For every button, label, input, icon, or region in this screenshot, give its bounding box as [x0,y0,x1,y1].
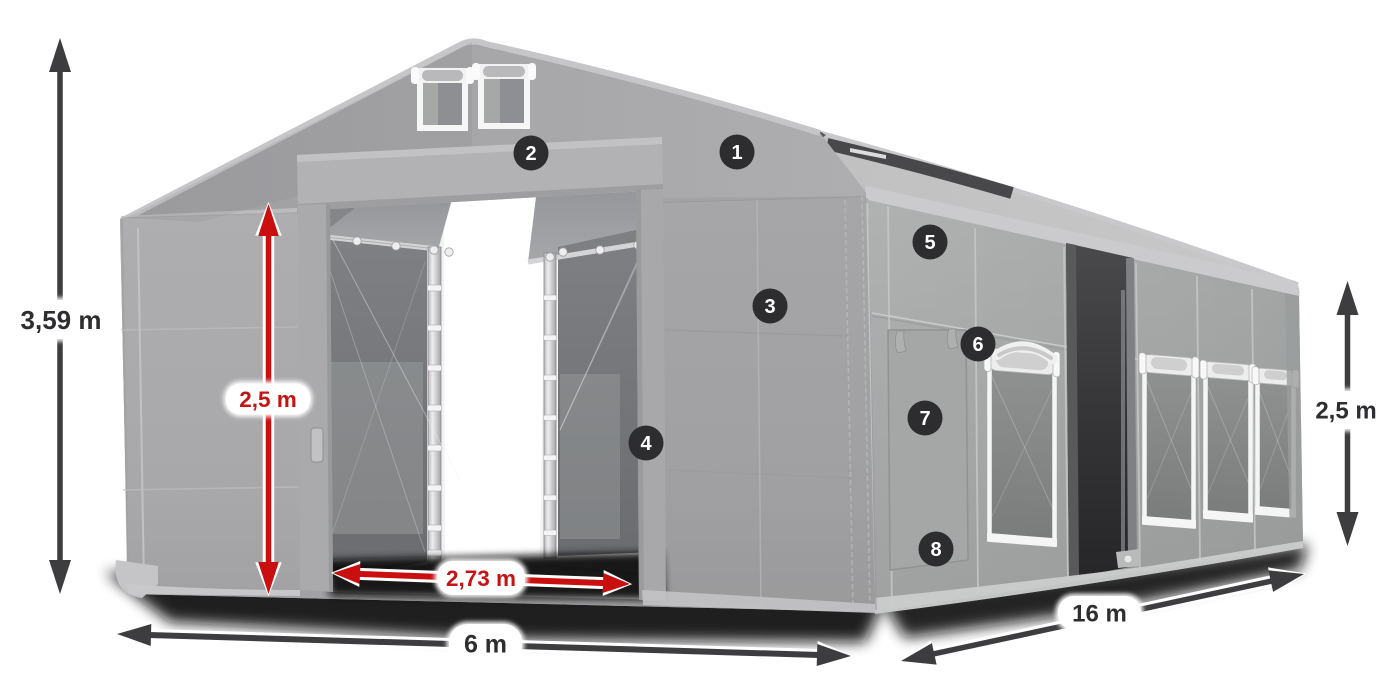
svg-text:6 m: 6 m [464,631,507,659]
svg-text:3,59 m: 3,59 m [21,305,102,335]
svg-text:5: 5 [924,232,935,254]
svg-text:2,5 m: 2,5 m [1315,398,1376,425]
svg-text:8: 8 [930,539,941,561]
svg-text:2: 2 [525,143,536,165]
svg-text:2,73 m: 2,73 m [446,566,516,591]
svg-text:1: 1 [731,142,742,164]
svg-text:16 m: 16 m [1072,601,1127,628]
svg-text:3: 3 [764,296,775,318]
svg-text:2,5 m: 2,5 m [239,387,297,412]
svg-text:6: 6 [972,334,983,356]
svg-text:7: 7 [919,408,930,430]
svg-text:4: 4 [640,433,652,455]
